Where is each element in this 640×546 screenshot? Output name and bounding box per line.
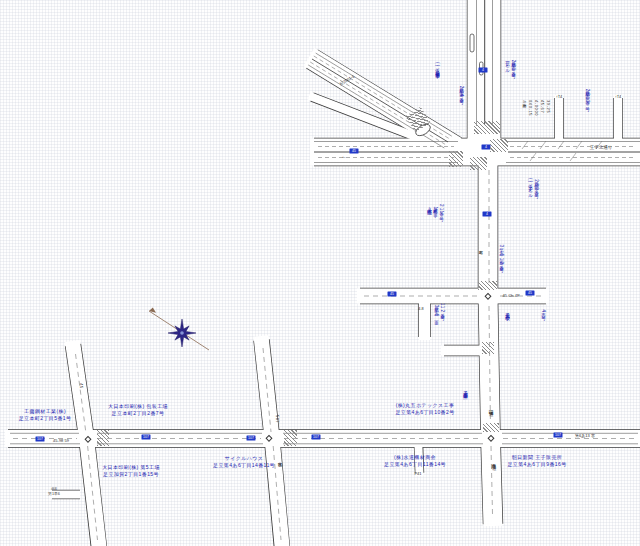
road-detail-lines — [10, 0, 640, 540]
compass-star — [149, 308, 209, 351]
road-casings — [8, 0, 640, 546]
road-fills — [5, 0, 640, 546]
map-canvas[interactable]: 工藤鋼材工業(株)足立本町2丁目5番1号大日本印刷(株) 包装工場足立本町2丁目… — [0, 0, 640, 546]
compass-star-center — [180, 331, 184, 335]
road-network-svg — [0, 0, 640, 546]
